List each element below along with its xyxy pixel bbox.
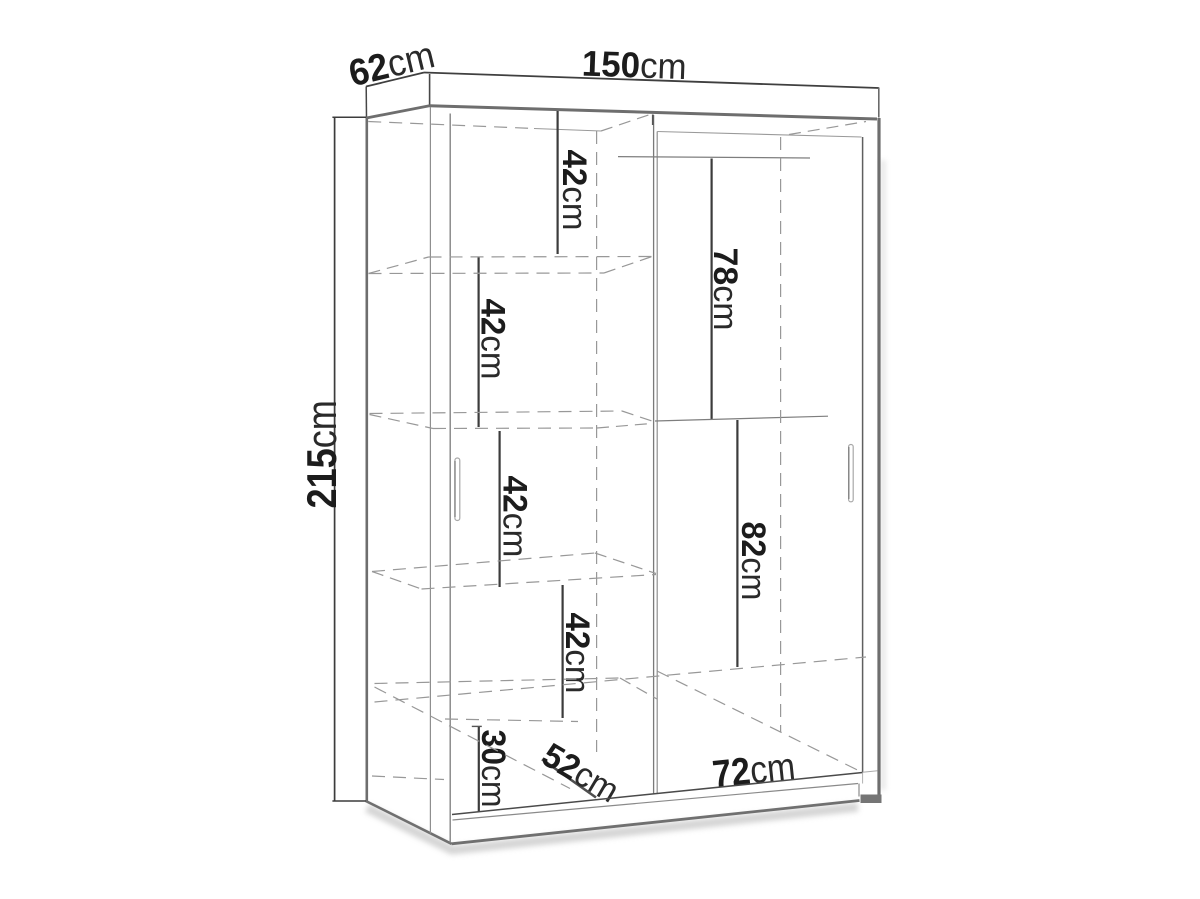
- svg-text:42cm: 42cm: [555, 150, 594, 231]
- svg-text:30cm: 30cm: [474, 730, 512, 808]
- svg-text:150cm: 150cm: [581, 43, 687, 87]
- svg-text:42cm: 42cm: [495, 476, 534, 558]
- svg-text:215cm: 215cm: [300, 400, 346, 508]
- svg-text:42cm: 42cm: [473, 299, 512, 380]
- svg-text:42cm: 42cm: [558, 613, 597, 694]
- svg-text:78cm: 78cm: [706, 248, 744, 331]
- svg-text:72cm: 72cm: [710, 744, 797, 796]
- svg-text:82cm: 82cm: [734, 522, 772, 601]
